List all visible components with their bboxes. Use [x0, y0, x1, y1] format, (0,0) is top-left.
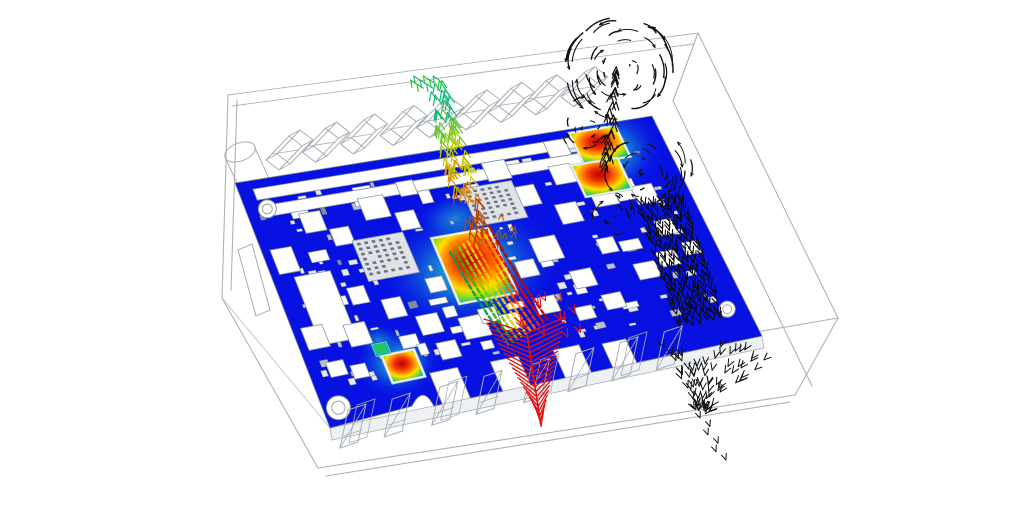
- 3d-viewport[interactable]: [0, 0, 1024, 512]
- mounting-hole: [258, 200, 276, 218]
- simulation-canvas: [0, 0, 1024, 512]
- mounting-hole: [719, 301, 735, 317]
